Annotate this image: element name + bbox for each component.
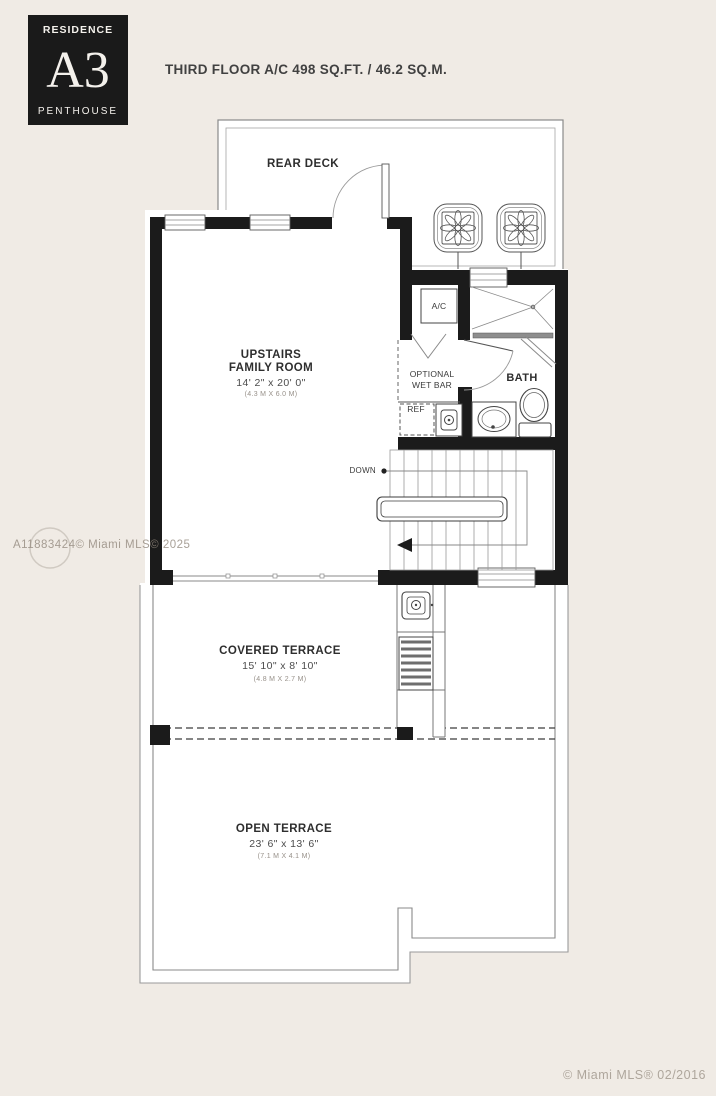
terrace-floor — [140, 583, 568, 983]
family-room-metric: (4.3 M X 6.0 M) — [245, 391, 298, 398]
mls-copyright: © Miami MLS® 02/2016 — [563, 1068, 706, 1082]
covered-terrace-dims: 15' 10" x 8' 10" — [242, 660, 318, 672]
grill — [399, 637, 433, 690]
ac-closet-label: A/C — [432, 301, 447, 312]
terrace-post — [397, 727, 413, 740]
stairs-down-label: DOWN — [320, 466, 376, 475]
family-room-floor — [145, 210, 412, 588]
open-terrace-dims: 23' 6" x 13' 6" — [249, 838, 318, 850]
vanity-sink — [472, 402, 516, 437]
residence-badge: RESIDENCE A3 PENTHOUSE — [28, 15, 128, 125]
bath-label: BATH — [506, 372, 537, 385]
stair-railing — [377, 497, 507, 521]
open-terrace-label: OPEN TERRACE — [236, 823, 332, 836]
bar-sink — [402, 592, 433, 619]
floorplan-page: RESIDENCE A3 PENTHOUSE THIRD FLOOR A/C 4… — [0, 0, 716, 1096]
badge-penthouse-label: PENTHOUSE — [38, 106, 118, 117]
wet-bar-label: OPTIONAL WET BAR — [410, 369, 455, 390]
grill-counter — [397, 585, 445, 737]
terrace-post — [150, 725, 170, 745]
family-room-dims: 14' 2" x 20' 0" — [236, 377, 305, 389]
family-room-label: UPSTAIRS FAMILY ROOM — [229, 349, 313, 375]
ref-label: REF — [407, 404, 425, 415]
rear-deck-label: REAR DECK — [267, 158, 339, 171]
covered-terrace-metric: (4.8 M X 2.7 M) — [254, 676, 307, 683]
floor-title: THIRD FLOOR A/C 498 SQ.FT. / 46.2 SQ.M. — [165, 62, 447, 77]
wetbar-sink — [436, 404, 462, 436]
mls-watermark: A11883424© Miami MLS© 2025 — [13, 539, 190, 551]
open-terrace-metric: (7.1 M X 4.1 M) — [258, 853, 311, 860]
toilet — [519, 389, 551, 438]
badge-residence-label: RESIDENCE — [43, 24, 113, 36]
covered-terrace-label: COVERED TERRACE — [219, 645, 341, 658]
badge-unit-number: A3 — [46, 48, 110, 94]
